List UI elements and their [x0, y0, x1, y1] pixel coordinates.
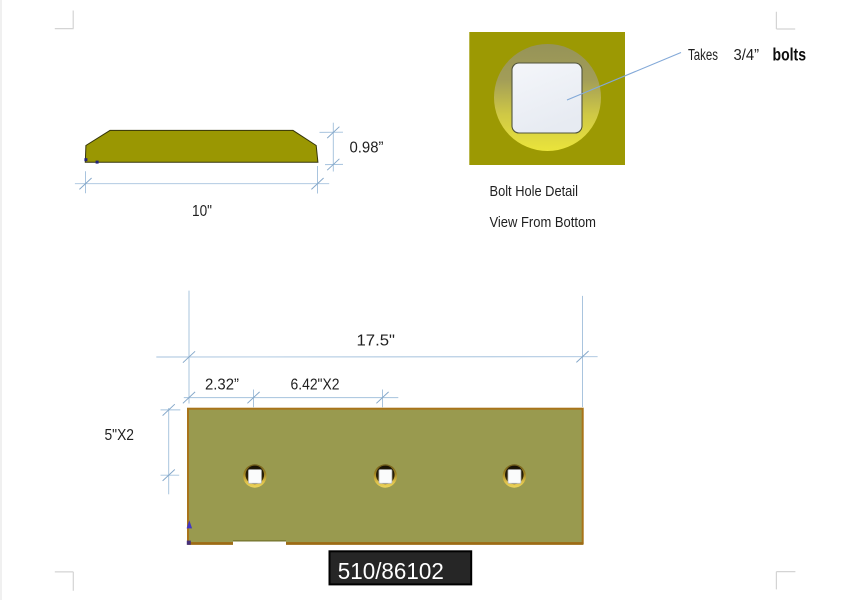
svg-text:bolts: bolts [773, 45, 807, 65]
svg-text:Takes: Takes [688, 47, 718, 64]
svg-text:2.32”: 2.32” [205, 376, 239, 393]
svg-text:3/4”: 3/4” [734, 47, 760, 64]
svg-text:510/86102: 510/86102 [338, 558, 444, 584]
svg-text:17.5": 17.5" [357, 332, 396, 349]
svg-text:6.42"X2: 6.42"X2 [291, 376, 340, 393]
svg-text:View From Bottom: View From Bottom [490, 214, 597, 231]
svg-text:5"X2: 5"X2 [105, 427, 135, 444]
svg-text:10": 10" [192, 203, 212, 220]
svg-text:0.98”: 0.98” [350, 140, 384, 157]
svg-text:Bolt Hole Detail: Bolt Hole Detail [490, 183, 579, 200]
